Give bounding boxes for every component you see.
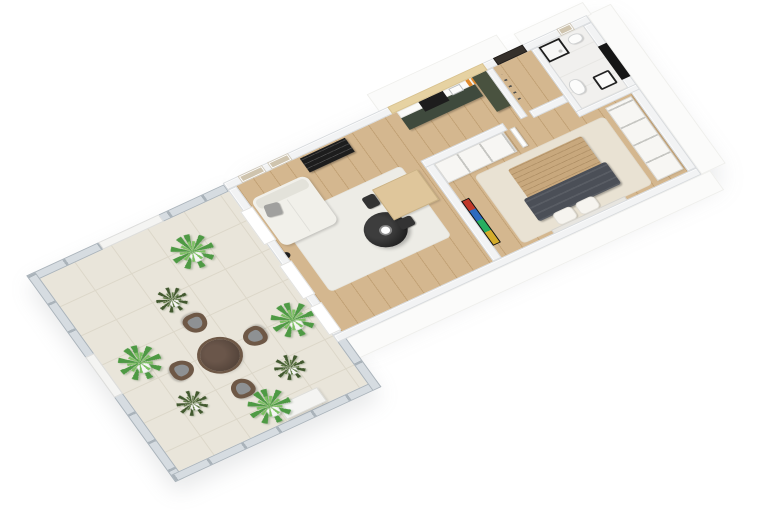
- isometric-wrapper: [39, 87, 770, 375]
- apartment-floorplan-render: [0, 0, 770, 510]
- plant-pot: [287, 366, 299, 376]
- plant-pot: [136, 361, 153, 375]
- plant-pot: [265, 405, 282, 419]
- floor-plan: [0, 0, 770, 508]
- plant-pot: [189, 402, 201, 412]
- plant-pot: [188, 250, 205, 264]
- plant-pot: [289, 319, 306, 333]
- plant-pot: [169, 299, 181, 309]
